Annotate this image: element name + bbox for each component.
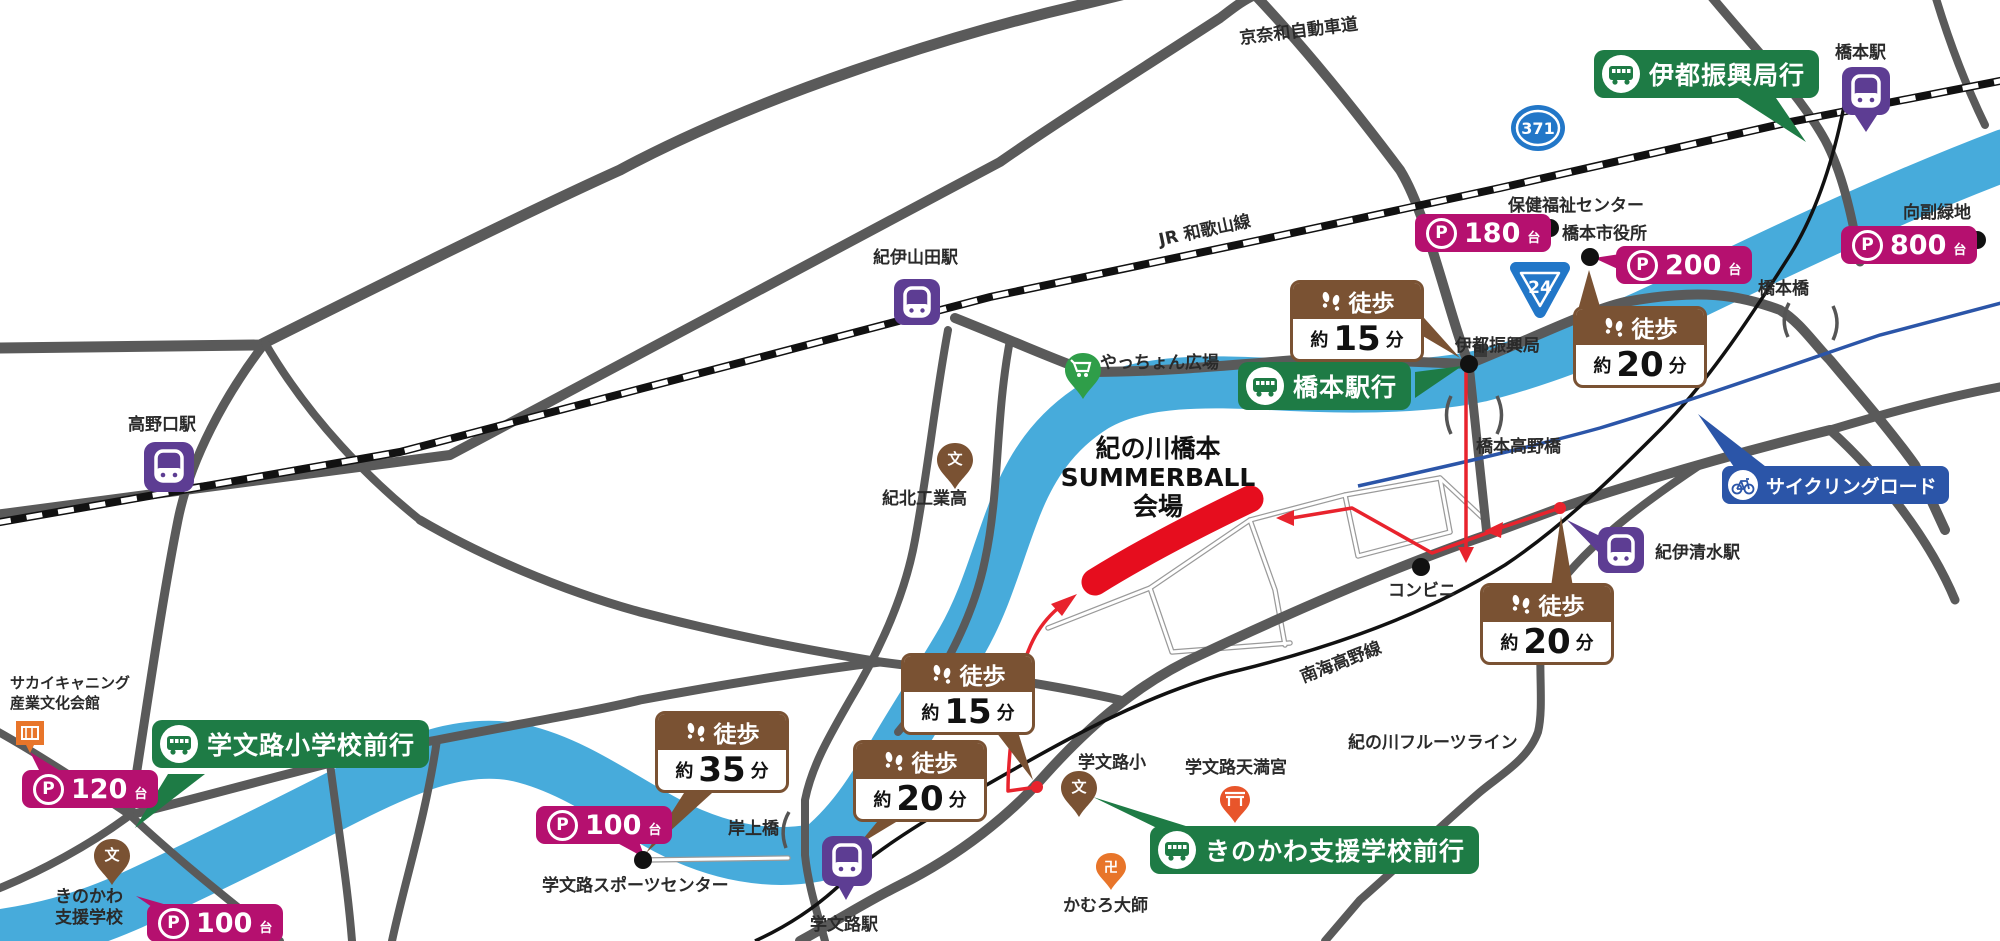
parking-unit: 台 [134, 783, 147, 805]
bus-badge-kamuro: 学文路小学校前行 [152, 720, 429, 768]
parking-icon: P [1852, 230, 1883, 261]
footsteps-icon [1510, 592, 1532, 616]
venue-line3: 会場 [1052, 492, 1264, 521]
route-shield-371: 371 [1511, 105, 1565, 151]
walk-badge-shimizu-20: 徒歩 約20分 [1480, 583, 1614, 665]
map-canvas: 371 24 [0, 0, 2000, 941]
parking-badge-mukaizoe: P 800 台 [1841, 226, 1977, 264]
label-kamuro-station: 学文路駅 [810, 910, 878, 935]
label-sakai-hall-2: 産業文化会館 [10, 692, 100, 713]
parking-count: 800 [1890, 232, 1946, 259]
label-city-hall: 橋本市役所 [1562, 219, 1647, 244]
walk-about: 約 [1593, 352, 1611, 378]
parking-badge-sakai: P 120 台 [22, 770, 158, 808]
bus-badge-label: きのかわ支援学校前行 [1205, 832, 1465, 868]
parking-unit: 台 [1953, 239, 1966, 261]
walk-badge-kamuroeki-20: 徒歩 約20分 [853, 740, 987, 822]
venue-label: 紀の川橋本 SUMMERBALL 会場 [1052, 434, 1264, 521]
label-mukaizoe-park: 向副緑地 [1903, 198, 1971, 223]
walk-unit: 分 [1576, 629, 1594, 655]
label-ito-office: 伊都振興局 [1455, 331, 1540, 356]
label-yatchon-plaza: やっちょん広場 [1100, 348, 1219, 373]
label-koyaguchi-station: 高野口駅 [128, 410, 196, 435]
station-marker-kamuro [822, 836, 872, 886]
walk-badge-kamuro-15: 徒歩 約15分 [901, 653, 1035, 735]
parking-icon: P [1627, 250, 1658, 281]
svg-text:24: 24 [1528, 278, 1552, 298]
walk-label: 徒歩 [1349, 284, 1395, 318]
cycling-road-label: サイクリングロード [1766, 472, 1937, 499]
walk-badge-sports-35: 徒歩 約35分 [655, 711, 789, 793]
bus-badge-ito: 伊都振興局行 [1594, 50, 1819, 98]
parking-icon: P [547, 810, 578, 841]
label-bridge-koya: 橋本高野橋 [1476, 432, 1561, 457]
label-kiishimizu-station: 紀伊清水駅 [1655, 538, 1740, 563]
walk-label: 徒歩 [1539, 587, 1585, 621]
bus-icon [1246, 367, 1284, 405]
walk-label: 徒歩 [714, 715, 760, 749]
svg-text:文: 文 [1071, 778, 1087, 796]
footsteps-icon [883, 749, 905, 773]
parking-unit: 台 [1527, 227, 1540, 249]
label-kamuro-elementary: 学文路小 [1078, 748, 1146, 773]
route-shield-24: 24 [1516, 268, 1564, 312]
bicycle-icon [1728, 470, 1758, 500]
walk-unit: 分 [949, 786, 967, 812]
walk-minutes: 15 [1333, 319, 1380, 359]
walk-unit: 分 [1669, 352, 1687, 378]
bus-badge-label: 橋本駅行 [1293, 368, 1397, 404]
bus-badge-label: 学文路小学校前行 [207, 726, 415, 762]
cycling-road-badge: サイクリングロード [1722, 466, 1949, 504]
school-pin-kamurosho: 文 [1061, 771, 1097, 817]
label-tenmangu: 学文路天満宮 [1185, 753, 1287, 778]
parking-icon: P [33, 774, 64, 805]
label-sports-center: 学文路スポーツセンター [542, 871, 729, 896]
parking-count: 100 [585, 812, 641, 839]
walk-badge-cityhall-20: 徒歩 約20分 [1573, 306, 1707, 388]
parking-badge-sports: P 100 台 [536, 806, 672, 844]
parking-icon: P [158, 908, 189, 939]
label-sakai-hall-1: サカイキャニング [10, 672, 130, 693]
school-pin-kihoku: 文 [937, 443, 973, 489]
minor-roads-core [643, 478, 1487, 860]
svg-text:文: 文 [104, 846, 120, 864]
label-kamuro-daishi: かむろ大師 [1063, 891, 1148, 916]
bus-badge-kinokawa: きのかわ支援学校前行 [1150, 826, 1479, 874]
svg-text:文: 文 [947, 450, 963, 468]
bus-badge-hashimoto: 橋本駅行 [1238, 362, 1411, 410]
parking-unit: 台 [259, 917, 272, 939]
walk-unit: 分 [997, 699, 1015, 725]
walk-about: 約 [1500, 629, 1518, 655]
label-fruit-line: 紀の川フルーツライン [1348, 728, 1518, 753]
parking-count: 180 [1464, 220, 1520, 247]
label-kihoku-school: 紀北工業高 [882, 484, 967, 509]
parking-icon: P [1426, 218, 1457, 249]
walk-badge-ito-15: 徒歩 約15分 [1290, 280, 1424, 362]
station-marker-kiiyamada [894, 279, 940, 325]
parking-badge-hoken: P 180 台 [1415, 214, 1551, 252]
svg-text:371: 371 [1521, 119, 1554, 138]
temple-pin-icon: 卍 [1096, 853, 1126, 890]
walk-minutes: 35 [698, 750, 745, 790]
label-hoken-center: 保健福祉センター [1508, 191, 1644, 216]
footsteps-icon [931, 662, 953, 686]
walk-label: 徒歩 [912, 744, 958, 778]
venue-line1: 紀の川橋本 [1052, 434, 1264, 463]
label-bridge-hashimoto: 橋本橋 [1758, 274, 1809, 299]
walk-minutes: 20 [1523, 622, 1570, 662]
walk-label: 徒歩 [960, 657, 1006, 691]
venue-line2: SUMMERBALL [1052, 463, 1264, 492]
shrine-pin-icon [1220, 786, 1250, 823]
parking-badge-cityhall: P 200 台 [1616, 246, 1752, 284]
parking-count: 200 [1665, 252, 1721, 279]
label-convenience-store: コンビニ [1388, 576, 1456, 601]
walk-minutes: 15 [944, 692, 991, 732]
label-shien-school-2: 支援学校 [55, 903, 123, 928]
bus-badge-label: 伊都振興局行 [1649, 56, 1805, 92]
minor-roads [643, 478, 1487, 860]
access-map: 371 24 [0, 0, 2000, 941]
parking-unit: 台 [648, 819, 661, 841]
label-kinokawa-river: 紀の川 [1266, 426, 1317, 451]
parking-unit: 台 [1728, 259, 1741, 281]
label-bridge-kishigami: 岸上橋 [728, 814, 779, 839]
bus-icon [160, 725, 198, 763]
walk-about: 約 [921, 699, 939, 725]
walk-about: 約 [1310, 326, 1328, 352]
walk-about: 約 [675, 757, 693, 783]
footsteps-icon [1603, 315, 1625, 339]
label-hashimoto-station: 橋本駅 [1835, 38, 1886, 63]
bus-icon [1602, 55, 1640, 93]
walk-minutes: 20 [896, 779, 943, 819]
svg-text:卍: 卍 [1104, 860, 1118, 876]
footsteps-icon [685, 720, 707, 744]
footsteps-icon [1320, 289, 1342, 313]
walk-about: 約 [873, 786, 891, 812]
label-kiiyamada-station: 紀伊山田駅 [873, 243, 958, 268]
bus-icon [1158, 831, 1196, 869]
parking-badge-shien: P 100 台 [147, 904, 283, 941]
walk-minutes: 20 [1616, 345, 1663, 385]
walk-unit: 分 [751, 757, 769, 783]
station-marker-kiishimizu [1598, 527, 1644, 573]
walk-unit: 分 [1386, 326, 1404, 352]
walk-label: 徒歩 [1632, 310, 1678, 344]
parking-count: 100 [196, 910, 252, 937]
station-marker-hashimoto [1842, 67, 1890, 115]
parking-count: 120 [71, 776, 127, 803]
station-marker-koyaguchi [144, 442, 194, 492]
